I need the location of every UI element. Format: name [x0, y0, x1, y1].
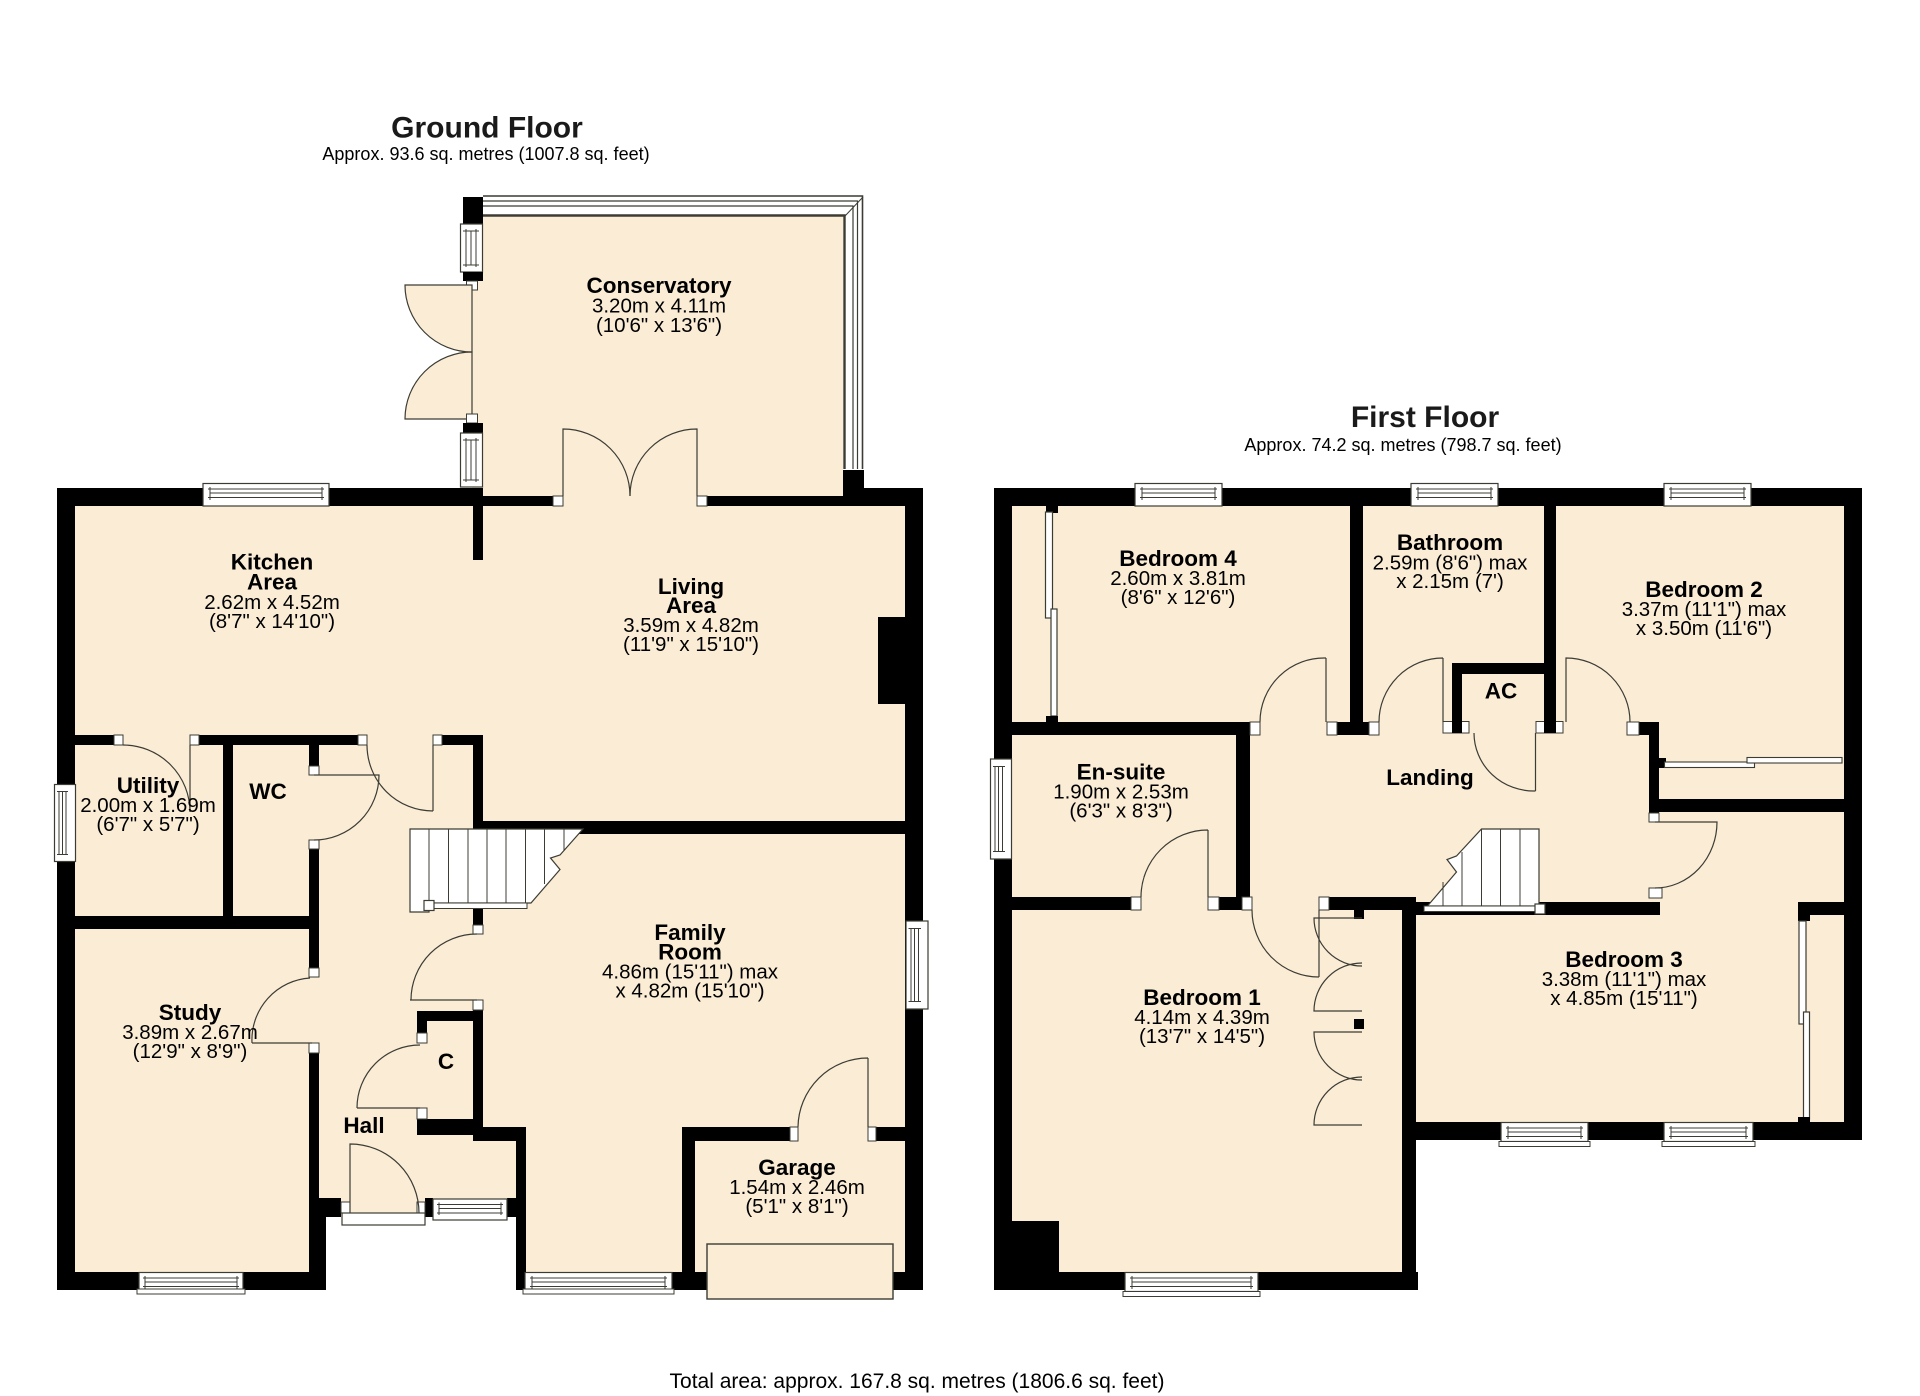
- svg-text:Approx. 74.2 sq. metres (798.7: Approx. 74.2 sq. metres (798.7 sq. feet): [1244, 435, 1561, 455]
- svg-text:AC: AC: [1485, 679, 1518, 704]
- svg-text:(12'9" x 8'9"): (12'9" x 8'9"): [133, 1040, 248, 1063]
- svg-text:WC: WC: [249, 779, 287, 804]
- svg-text:First Floor: First Floor: [1351, 401, 1500, 434]
- svg-text:Approx. 93.6 sq. metres (1007.: Approx. 93.6 sq. metres (1007.8 sq. feet…: [322, 144, 649, 164]
- svg-text:C: C: [438, 1049, 454, 1074]
- svg-text:(6'3" x 8'3"): (6'3" x 8'3"): [1069, 800, 1172, 823]
- svg-text:(10'6" x 13'6"): (10'6" x 13'6"): [596, 314, 722, 337]
- svg-text:Landing: Landing: [1386, 765, 1473, 790]
- svg-text:Hall: Hall: [343, 1113, 384, 1138]
- svg-text:Total area: approx. 167.8 sq.: Total area: approx. 167.8 sq. metres (18…: [670, 1370, 1165, 1393]
- svg-text:(8'7" x 14'10"): (8'7" x 14'10"): [209, 610, 335, 633]
- svg-text:(13'7" x 14'5"): (13'7" x 14'5"): [1139, 1025, 1265, 1048]
- svg-text:(8'6" x 12'6"): (8'6" x 12'6"): [1121, 586, 1236, 609]
- svg-text:(6'7" x 5'7"): (6'7" x 5'7"): [96, 813, 199, 836]
- svg-text:x 4.82m (15'10"): x 4.82m (15'10"): [615, 980, 764, 1003]
- svg-text:x 2.15m (7'): x 2.15m (7'): [1396, 570, 1504, 593]
- svg-text:(11'9" x 15'10"): (11'9" x 15'10"): [623, 633, 759, 656]
- svg-text:x 3.50m (11'6"): x 3.50m (11'6"): [1636, 617, 1772, 640]
- svg-text:(5'1" x 8'1"): (5'1" x 8'1"): [745, 1195, 848, 1218]
- svg-text:x 4.85m (15'11"): x 4.85m (15'11"): [1550, 987, 1698, 1010]
- svg-text:Ground Floor: Ground Floor: [391, 112, 583, 145]
